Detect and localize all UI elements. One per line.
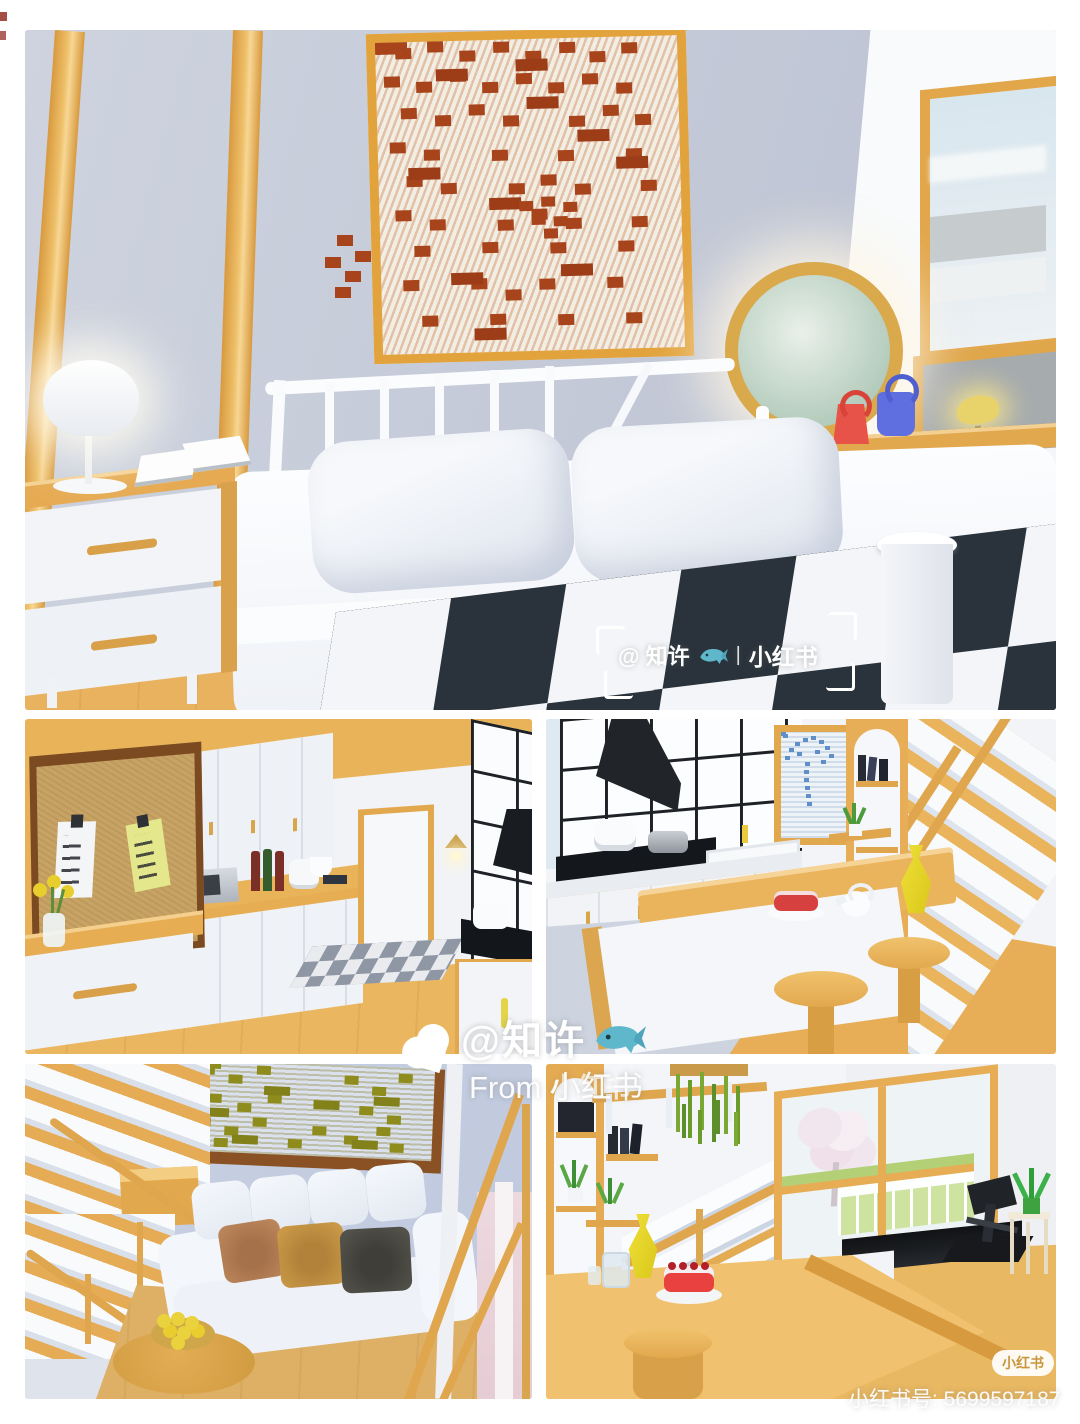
drawer-handle	[73, 983, 137, 1000]
nightstand-leg	[187, 670, 197, 704]
strawberry-dots	[668, 1262, 676, 1270]
cabinet-handle	[293, 818, 297, 832]
flower	[47, 875, 61, 889]
wall-sconce-shade	[445, 834, 467, 848]
white-curtain	[495, 1182, 513, 1399]
spiky-plant	[1012, 1168, 1052, 1218]
wooden-stool	[774, 971, 868, 1054]
fruit-lemons	[157, 1314, 171, 1328]
nightstand-leg	[47, 678, 57, 708]
plant-pot	[849, 824, 862, 836]
panel-living-window: 小红书	[546, 1064, 1056, 1399]
sofa-back-cushion	[306, 1167, 370, 1229]
panel-kitchen-island	[546, 719, 1056, 1054]
stool-leg	[898, 961, 920, 1023]
badge-brand: 小红书	[1002, 1355, 1044, 1371]
watermark-top-group: @ 知许 | 小红书	[590, 610, 858, 696]
author-handle: @知许	[461, 1008, 586, 1066]
note-clip	[71, 814, 84, 827]
stool-seat	[774, 971, 868, 1007]
heart-icon	[385, 1008, 470, 1091]
pixel-blocks-long	[375, 42, 407, 55]
nightstand-side	[221, 481, 237, 673]
plant-pot	[568, 1188, 583, 1202]
pixel-art-painting	[366, 30, 695, 364]
collage-page: { "watermark_top": { "handle": "@ 知许", "…	[0, 0, 1080, 1424]
lamp-shade	[43, 360, 139, 436]
plant-leaf	[856, 807, 867, 825]
table-leg	[1044, 1219, 1048, 1274]
watermark-center-group: @知许 From 小红书	[395, 1006, 735, 1110]
faucet	[742, 825, 748, 843]
drawer-handle	[87, 538, 157, 556]
throw-pillow-tan	[217, 1218, 287, 1285]
pixel-heart-cluster	[519, 201, 533, 211]
cooking-pot	[473, 903, 509, 929]
awning-band	[930, 257, 1046, 303]
plant-pot	[604, 1204, 620, 1219]
corner-badge: 小红书	[992, 1350, 1054, 1376]
bracket-top-right	[828, 612, 857, 641]
bracket-bottom-left	[604, 670, 633, 699]
glass-bottle	[602, 1252, 630, 1288]
cabinet-handle	[251, 820, 255, 834]
note-clip	[136, 814, 149, 828]
counter-books	[323, 875, 347, 884]
cabinet-handle	[209, 822, 213, 836]
sofa-back-cushion	[364, 1161, 428, 1223]
whale-icon	[698, 643, 728, 667]
table-leg	[1010, 1219, 1014, 1274]
table-leg	[1026, 1222, 1030, 1274]
from-brand-line: From 小红书	[469, 1062, 643, 1107]
blossom-cloud	[798, 1105, 842, 1150]
arch-shelf	[856, 847, 898, 853]
strawberry-cake	[664, 1266, 714, 1292]
cloud-band	[930, 145, 1046, 183]
headboard-bar	[545, 366, 554, 438]
stool-seat	[868, 937, 950, 969]
side-table	[1008, 1212, 1050, 1276]
vase-body	[43, 913, 65, 947]
book-page	[182, 436, 252, 473]
rail-post	[85, 1274, 91, 1344]
bracket-bottom-right	[826, 662, 855, 691]
arch-plant	[560, 1160, 590, 1208]
arch-shelf	[856, 781, 898, 787]
author-handle: @ 知许	[618, 639, 690, 671]
arch-shelf	[556, 1206, 596, 1212]
stool-seat	[624, 1328, 712, 1358]
flower-vase	[33, 875, 81, 951]
edge-artifact	[0, 31, 6, 40]
window-upper	[920, 74, 1056, 362]
shelf-books	[858, 755, 866, 781]
teapot	[838, 883, 876, 917]
throw-pillow-dark	[339, 1226, 412, 1294]
stool-leg	[808, 999, 834, 1054]
shelf-books	[879, 759, 888, 781]
lamp-stem	[85, 428, 92, 484]
note-yellow	[126, 818, 171, 892]
panel-sofa-stairs	[25, 1064, 532, 1399]
teapot-handle	[848, 883, 874, 905]
wooden-stool	[624, 1328, 712, 1399]
stool-body	[881, 544, 953, 704]
lamp-post-head	[957, 394, 999, 426]
rail-post	[137, 1222, 143, 1292]
brand-name: 小红书	[749, 638, 818, 672]
flower-stem	[56, 889, 65, 915]
arch-shelf	[556, 1132, 596, 1138]
plant-pot	[1023, 1198, 1040, 1214]
wine-bottle	[251, 851, 260, 891]
handbag-red-handle	[840, 390, 872, 422]
glass-cup	[588, 1266, 601, 1285]
palm-pixel-art	[781, 732, 786, 736]
whale-icon	[592, 1015, 646, 1059]
throw-pillow-amber	[276, 1221, 347, 1289]
note-calligraphy	[133, 831, 163, 883]
panel-kitchen-corkboard	[25, 719, 532, 1054]
drawer-handle	[91, 634, 157, 651]
cake	[774, 891, 818, 911]
account-id-line: 小红书号: 5699597187	[848, 1383, 1060, 1413]
watermark-top-row: @ 知许 | 小红书	[618, 638, 818, 672]
wall-sconce-light	[451, 851, 461, 861]
handbag-blue-handle	[885, 374, 919, 408]
plant-leaf	[560, 1164, 573, 1188]
potted-plant	[842, 803, 868, 835]
plant-leaf	[576, 1164, 589, 1188]
watermark-separator: |	[736, 644, 741, 667]
edge-artifact	[0, 12, 7, 21]
center-handle-row: @知许	[461, 1008, 646, 1066]
pillow	[305, 426, 577, 596]
frying-pan	[648, 831, 688, 853]
wine-bottle	[263, 849, 272, 891]
window-mullion	[878, 1086, 886, 1243]
wine-bottle	[275, 851, 284, 891]
cooking-pot	[594, 819, 636, 851]
headboard-bar	[325, 382, 334, 454]
plant-leaf	[596, 1182, 609, 1204]
panel-bedroom	[25, 30, 1056, 710]
pixel-spill-blocks	[337, 235, 353, 246]
flower-stem	[51, 887, 54, 915]
plant-leaf	[1034, 1172, 1051, 1199]
wooden-stool	[868, 937, 950, 1029]
kettle	[310, 857, 332, 877]
curtain-rail-strip	[522, 1104, 530, 1399]
building-band	[930, 205, 1046, 263]
flower	[33, 883, 47, 897]
plant-leaf	[1012, 1172, 1029, 1199]
plant-leaf	[1029, 1168, 1034, 1200]
